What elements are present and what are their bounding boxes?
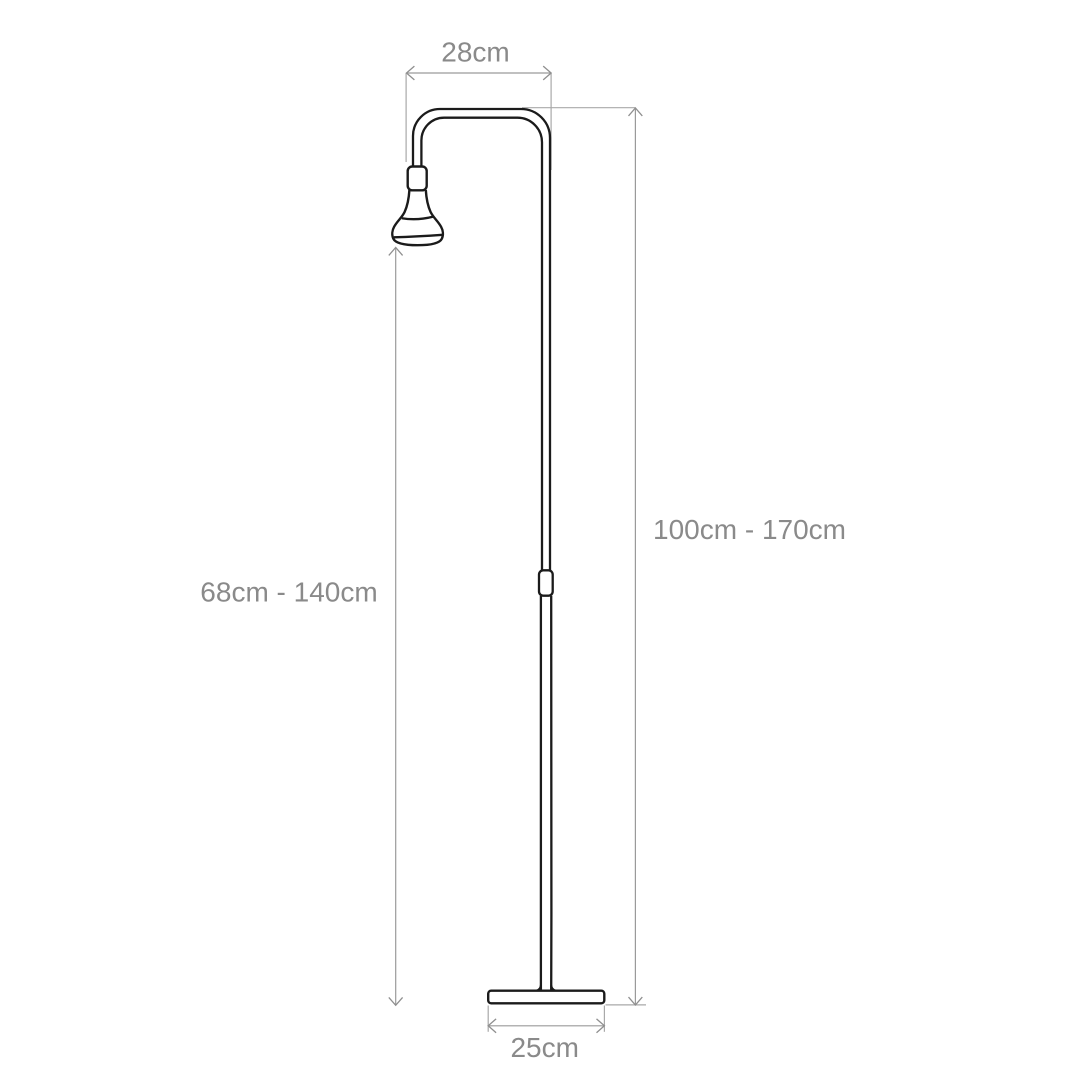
svg-text:68cm - 140cm: 68cm - 140cm [200,577,377,608]
svg-text:28cm: 28cm [441,37,509,68]
svg-text:100cm - 170cm: 100cm - 170cm [653,514,846,545]
svg-text:25cm: 25cm [510,1032,578,1063]
